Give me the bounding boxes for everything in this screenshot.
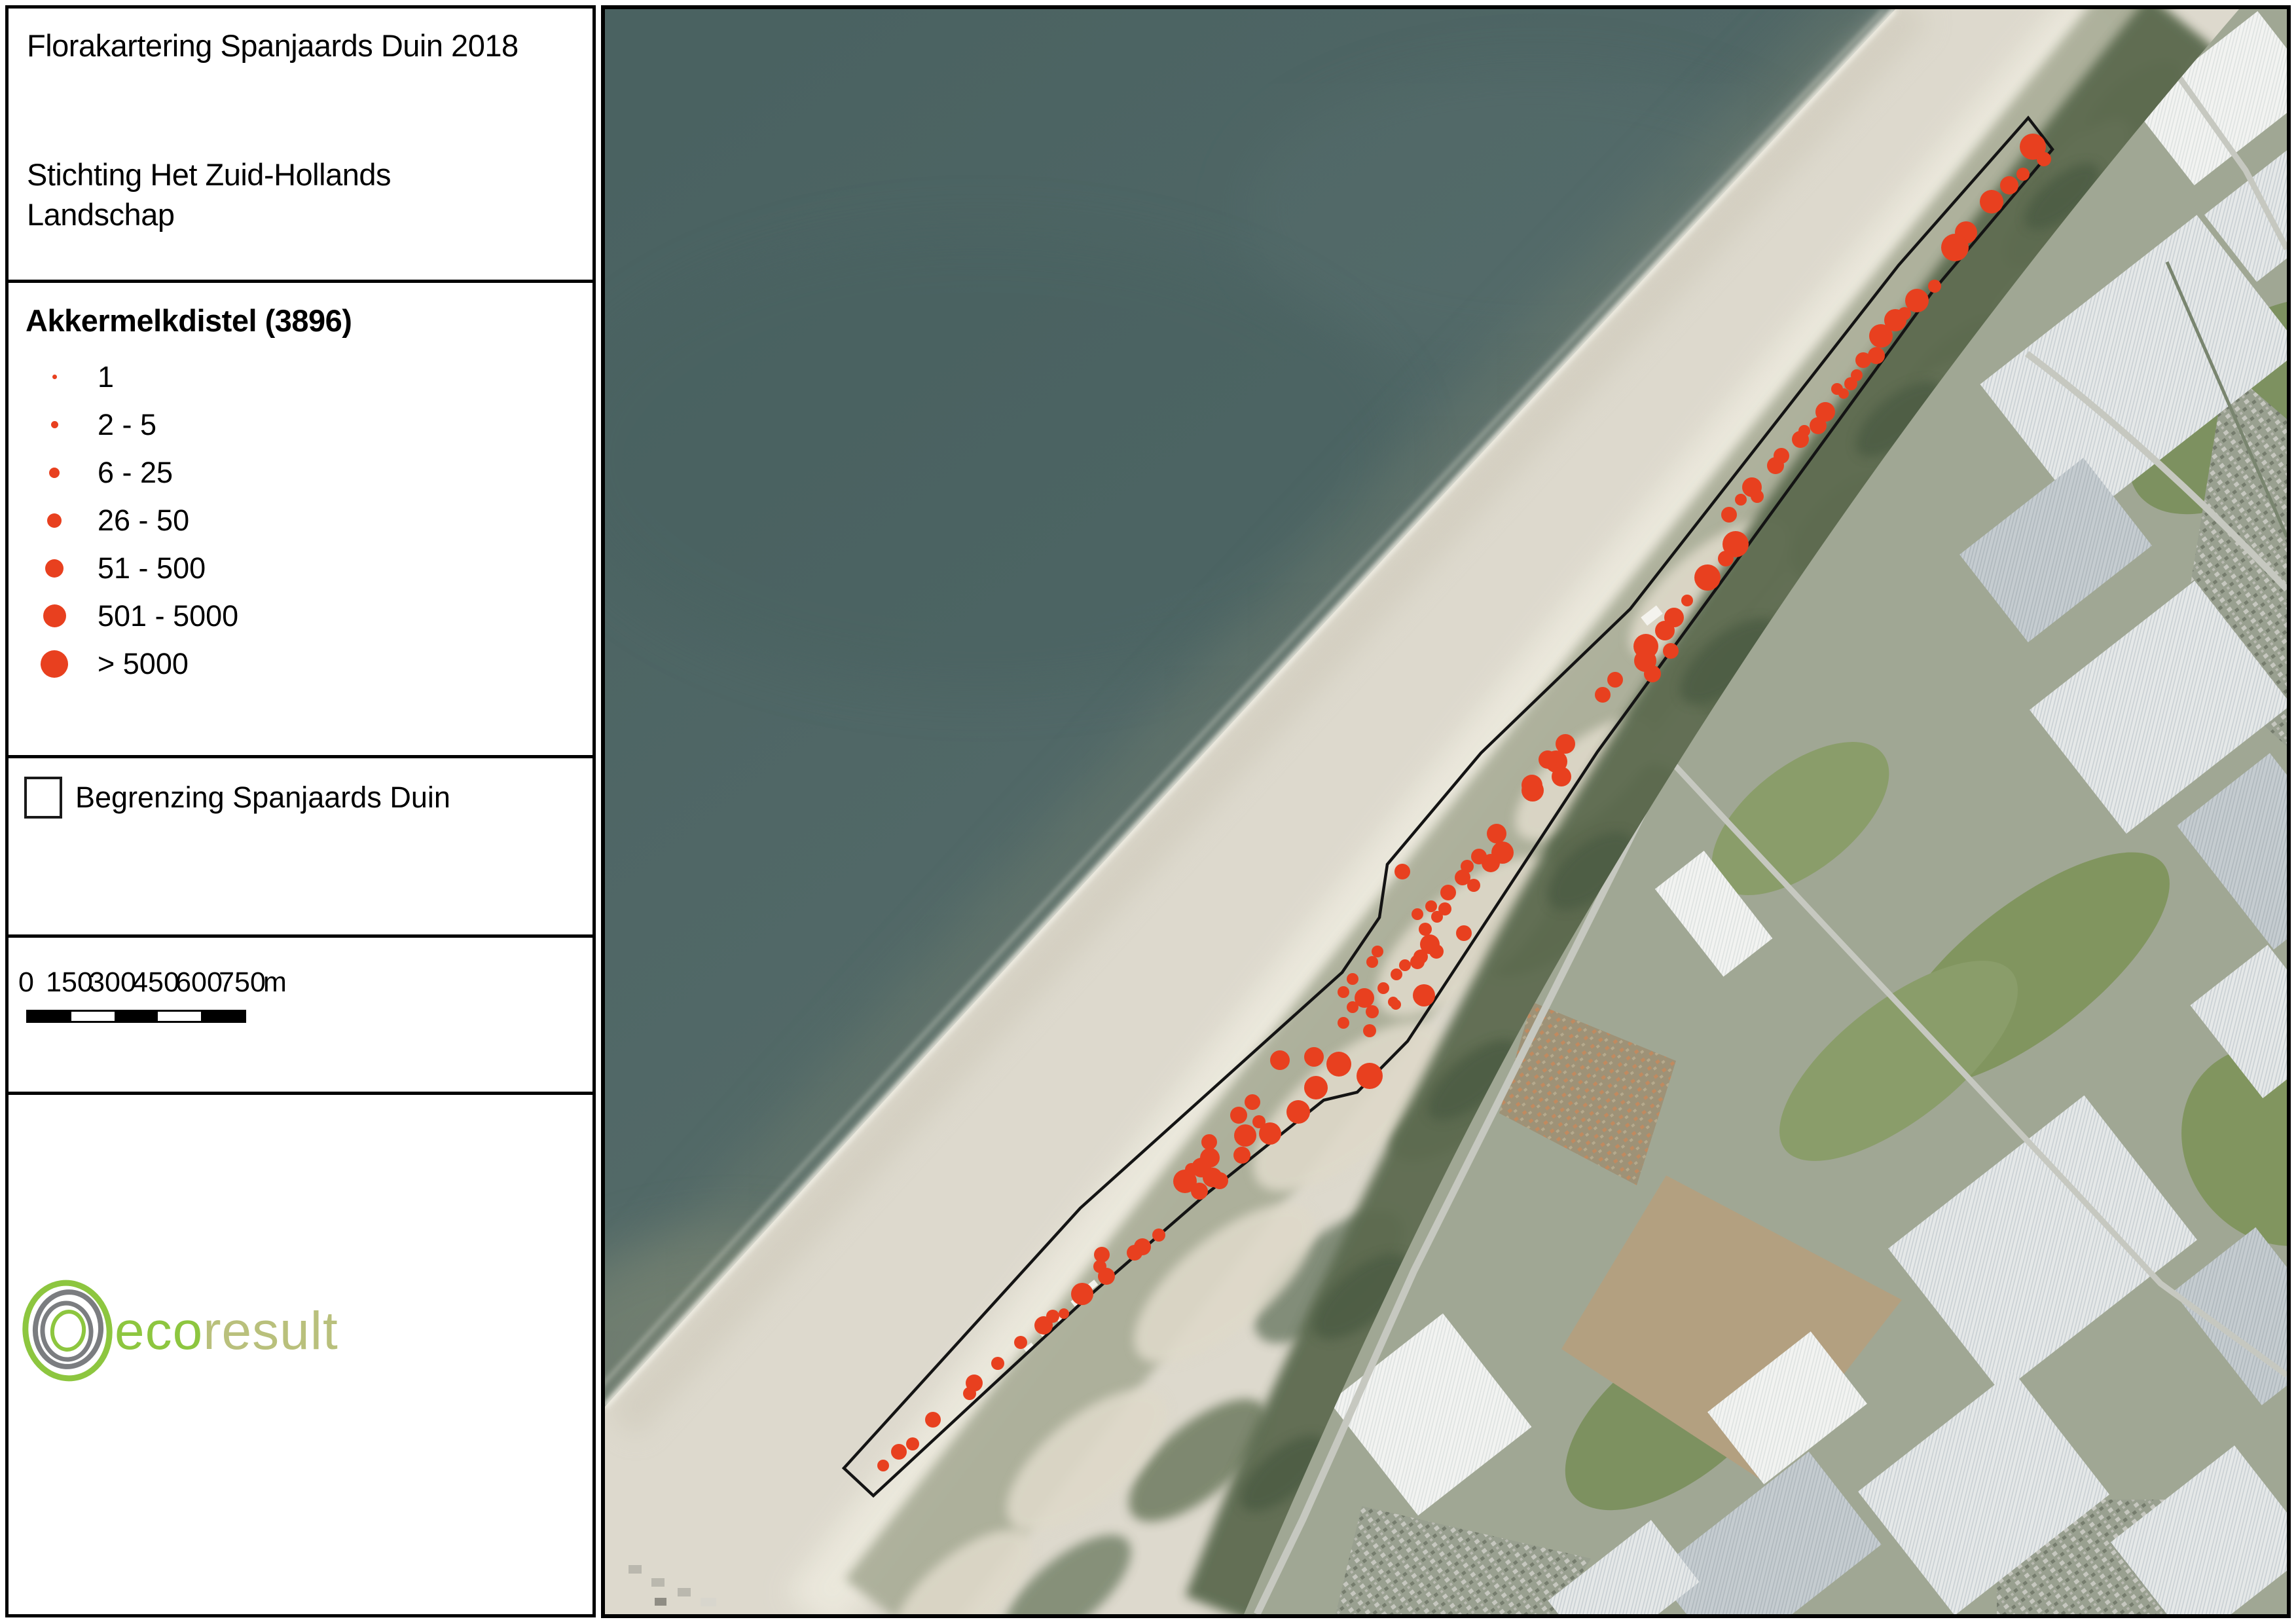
observation-dot xyxy=(1363,1024,1376,1037)
observation-dot xyxy=(1234,1124,1256,1147)
legend-section: Akkermelkdistel (3896) 12 - 56 - 2526 - … xyxy=(9,283,592,758)
observation-dot xyxy=(877,1460,889,1471)
observation-dot xyxy=(2000,176,2018,194)
observation-dot xyxy=(1338,986,1349,998)
observation-dot xyxy=(1792,431,1809,448)
observation-dot xyxy=(991,1357,1004,1370)
observation-dot xyxy=(1347,973,1358,985)
observation-dot xyxy=(1098,1268,1115,1285)
observation-dot xyxy=(1644,665,1661,682)
legend-header: Akkermelkdistel (3896) xyxy=(26,303,592,339)
scalebar-segment xyxy=(71,1012,115,1021)
map-panel xyxy=(601,5,2291,1618)
svg-text:ecoresult: ecoresult xyxy=(115,1301,338,1361)
legend-class-row: > 5000 xyxy=(26,640,592,688)
observation-dot xyxy=(1663,643,1679,659)
observation-dot xyxy=(1539,750,1557,769)
observation-dot xyxy=(1191,1183,1208,1200)
observation-dot xyxy=(1259,1122,1281,1145)
logo-rings-icon xyxy=(19,1278,115,1384)
observation-dot xyxy=(1735,494,1747,506)
observation-dot xyxy=(1152,1228,1165,1242)
legend-dot-icon xyxy=(49,468,60,478)
observation-dot xyxy=(1429,944,1444,959)
observation-dot xyxy=(1419,923,1432,936)
observation-dot xyxy=(1201,1134,1217,1150)
observation-dot xyxy=(1304,1047,1324,1067)
legend-class-label: 6 - 25 xyxy=(98,456,173,490)
boundary-legend-label: Begrenzing Spanjaards Duin xyxy=(75,781,450,815)
observation-dot xyxy=(1467,879,1480,892)
observation-dot xyxy=(1413,950,1428,964)
observation-dot xyxy=(1326,1052,1351,1077)
boundary-legend-row: Begrenzing Spanjaards Duin xyxy=(24,777,592,819)
observation-dot xyxy=(1456,925,1472,941)
observation-dot xyxy=(1844,377,1857,390)
legend-dot-icon xyxy=(51,421,58,428)
scalebar-segment xyxy=(28,1012,71,1021)
ecoresult-logo: ecoresult xyxy=(15,1252,382,1409)
legend-class-label: > 5000 xyxy=(98,647,189,681)
observation-dot xyxy=(963,1387,976,1400)
observation-dot xyxy=(1211,1172,1228,1189)
observation-dot xyxy=(1751,490,1764,503)
observation-dot xyxy=(1366,956,1378,968)
logo-section: ecoresult xyxy=(9,1095,592,1614)
scalebar-tick-label: 150 xyxy=(46,967,93,999)
observation-dot xyxy=(1767,457,1784,474)
observation-dot xyxy=(1372,946,1383,957)
observation-dot xyxy=(1718,551,1734,566)
legend-dot-icon xyxy=(52,375,57,379)
legend-class-row: 1 xyxy=(26,353,592,401)
legend-class-label: 1 xyxy=(98,360,114,394)
observation-dot xyxy=(1412,908,1423,920)
observation-dot xyxy=(1694,564,1721,591)
map-title: Florakartering Spanjaards Duin 2018 xyxy=(27,26,574,66)
title-section: Florakartering Spanjaards Duin 2018 Stic… xyxy=(9,9,592,283)
observation-dot xyxy=(1399,959,1411,971)
legend-class-row: 51 - 500 xyxy=(26,544,592,592)
scalebar-unit-label: m xyxy=(263,967,287,999)
scalebar-tick-label: 300 xyxy=(89,967,136,999)
boundary-symbol-icon xyxy=(24,777,62,819)
legend-rows: 12 - 56 - 2526 - 5051 - 500501 - 5000> 5… xyxy=(26,353,592,688)
map-canvas[interactable] xyxy=(605,9,2287,1614)
scalebar-tick-label: 0 xyxy=(18,967,34,999)
observation-dot xyxy=(1366,1005,1379,1018)
observation-dot xyxy=(1681,595,1693,606)
observation-dot xyxy=(1338,1017,1349,1029)
boundary-legend-section: Begrenzing Spanjaards Duin xyxy=(9,758,592,938)
observation-dot xyxy=(1357,1063,1383,1089)
observation-dot xyxy=(1377,982,1389,994)
observation-dot xyxy=(1440,885,1456,900)
legend-dot-icon xyxy=(41,650,68,678)
observation-dot xyxy=(1391,999,1401,1010)
observation-dot xyxy=(1425,900,1437,912)
scalebar-tick-label: 450 xyxy=(132,967,179,999)
observation-dot xyxy=(1980,190,2003,213)
observation-dot xyxy=(1059,1308,1069,1319)
observation-dot xyxy=(1721,507,1737,523)
scalebar-segment xyxy=(115,1012,158,1021)
observation-dot xyxy=(1391,969,1402,980)
observation-dot xyxy=(1941,234,1969,261)
observation-dot xyxy=(1127,1245,1142,1261)
observation-dot xyxy=(1552,767,1571,786)
observation-dot xyxy=(1607,672,1623,688)
legend-class-row: 6 - 25 xyxy=(26,449,592,496)
observation-dot xyxy=(1014,1336,1027,1349)
observation-dot xyxy=(1394,864,1410,879)
legend-class-row: 26 - 50 xyxy=(26,496,592,544)
scalebar-segment xyxy=(201,1012,244,1021)
scalebar-tick-labels: 0150300450600750m xyxy=(9,967,592,999)
observation-dot xyxy=(1928,280,1941,293)
observation-dot xyxy=(1094,1247,1110,1263)
legend-class-label: 2 - 5 xyxy=(98,408,156,442)
observation-dot xyxy=(1233,1147,1250,1164)
observation-dot xyxy=(925,1412,941,1428)
logo-word-result: result xyxy=(203,1301,338,1361)
observation-dot xyxy=(891,1444,907,1460)
observation-dot xyxy=(1487,824,1506,843)
observation-dot xyxy=(1071,1283,1093,1305)
observation-dot xyxy=(1230,1107,1247,1124)
observation-dot xyxy=(1431,911,1443,923)
legend-class-label: 501 - 5000 xyxy=(98,599,238,633)
legend-class-label: 51 - 500 xyxy=(98,551,206,585)
legend-class-row: 501 - 5000 xyxy=(26,592,592,640)
info-panel: Florakartering Spanjaards Duin 2018 Stic… xyxy=(5,5,596,1617)
logo-word-eco: eco xyxy=(115,1301,203,1361)
legend-dot-icon xyxy=(45,559,64,578)
legend-dot-icon xyxy=(43,604,66,627)
scalebar-segment xyxy=(158,1012,201,1021)
observation-dot xyxy=(1304,1076,1328,1099)
observation-dot xyxy=(1810,417,1827,434)
observation-dot xyxy=(1034,1316,1053,1335)
observation-dot xyxy=(1471,849,1487,864)
observation-dot xyxy=(1595,687,1611,703)
map-layout-page: Florakartering Spanjaards Duin 2018 Stic… xyxy=(0,0,2296,1624)
observation-dot xyxy=(2037,152,2051,166)
observation-dot xyxy=(1413,984,1435,1006)
legend-class-label: 26 - 50 xyxy=(98,504,189,538)
observation-dot xyxy=(1245,1094,1260,1110)
observation-dot xyxy=(1347,1001,1358,1013)
legend-class-row: 2 - 5 xyxy=(26,401,592,449)
legend-dot-icon xyxy=(47,513,62,528)
scalebar xyxy=(26,1010,246,1023)
observation-dot xyxy=(1270,1050,1290,1070)
observation-dot xyxy=(2016,168,2030,181)
observation-dot xyxy=(1522,775,1542,796)
scalebar-tick-label: 600 xyxy=(175,967,223,999)
observation-dot xyxy=(1286,1100,1310,1124)
scalebar-tick-label: 750 xyxy=(219,967,266,999)
scalebar-section: 0150300450600750m xyxy=(9,938,592,1095)
observation-dot xyxy=(1855,352,1871,368)
observation-dot xyxy=(1869,324,1893,348)
organization-name: Stichting Het Zuid-Hollands Landschap xyxy=(27,155,485,234)
observation-dot xyxy=(1655,621,1675,640)
observation-dot xyxy=(1838,388,1849,399)
observation-dot xyxy=(906,1437,919,1450)
